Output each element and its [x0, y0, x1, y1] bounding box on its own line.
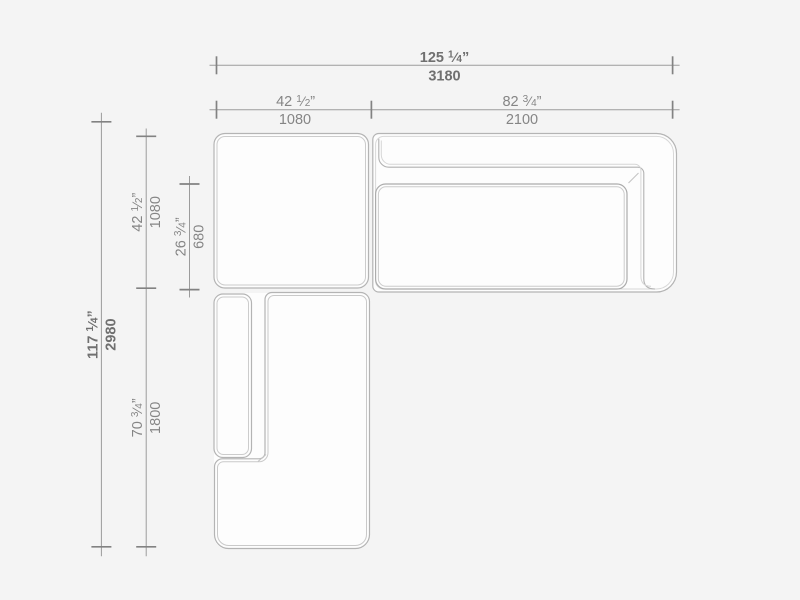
svg-text:42 1⁄2”: 42 1⁄2”	[276, 94, 315, 110]
svg-text:2100: 2100	[506, 112, 538, 128]
svg-text:82 3⁄4”: 82 3⁄4”	[502, 94, 541, 110]
svg-text:1800: 1800	[148, 402, 164, 434]
svg-text:26 3⁄4”: 26 3⁄4”	[173, 217, 189, 256]
svg-text:3180: 3180	[428, 69, 460, 85]
svg-text:117 1⁄4”: 117 1⁄4”	[85, 310, 101, 359]
svg-text:1080: 1080	[148, 196, 164, 228]
svg-text:2980: 2980	[103, 318, 119, 350]
svg-text:125 1⁄4”: 125 1⁄4”	[420, 50, 469, 66]
svg-text:1080: 1080	[279, 112, 311, 128]
svg-text:42 1⁄2”: 42 1⁄2”	[130, 193, 146, 232]
svg-text:70 3⁄4”: 70 3⁄4”	[130, 398, 146, 437]
svg-text:680: 680	[192, 225, 208, 249]
